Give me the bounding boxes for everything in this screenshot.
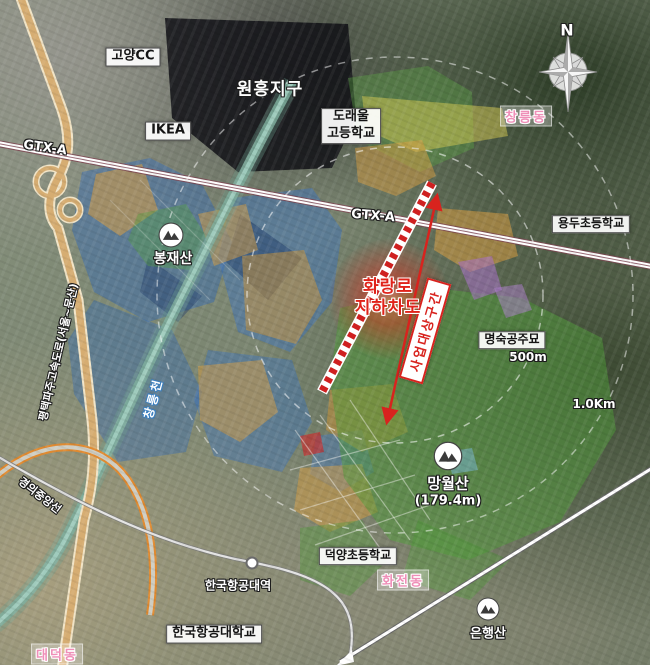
kau-station-label: 한국항공대역 (205, 577, 271, 594)
mountain-icon (476, 597, 500, 625)
mangwolsan-elevation-label: (179.4m) (415, 494, 482, 509)
myeongsuk-tomb-label: 명숙공주묘 (478, 331, 545, 349)
hwarang-underpass-label: 화랑로 지하차도 (355, 277, 422, 320)
doraeul-high-school-label: 도래울 고등학교 (321, 108, 381, 144)
mountain-icon (433, 441, 463, 475)
eunhaengsan-label: 은행산 (470, 623, 506, 642)
deokyang-school-label: 덕양초등학교 (319, 547, 397, 565)
compass-north-label: N (560, 21, 573, 40)
wonheung-district-label: 원흥지구 (237, 75, 304, 100)
hwajeon-dong-label: 화전동 (377, 570, 429, 591)
distance-1km-label: 1.0Km (572, 397, 615, 411)
golf-club-label: 고양CC (105, 48, 160, 67)
ikea-label: IKEA (145, 122, 191, 141)
station-marker (246, 557, 259, 570)
yongdu-school-label: 용두초등학교 (552, 215, 630, 233)
changneung-dong-label: 창릉동 (500, 106, 552, 127)
kau-university-label: 한국항공대학교 (166, 625, 262, 644)
satellite-plan-map: 고양CC 원흥지구 IKEA 도래울 고등학교 창릉동 N GTX-A GTX-… (0, 0, 650, 665)
daedeok-dong-label: 대덕동 (31, 644, 83, 665)
distance-500m-label: 500m (509, 350, 547, 364)
mangwolsan-label: 망월산 (427, 473, 468, 494)
bongjaesan-label: 봉재산 (154, 248, 193, 268)
